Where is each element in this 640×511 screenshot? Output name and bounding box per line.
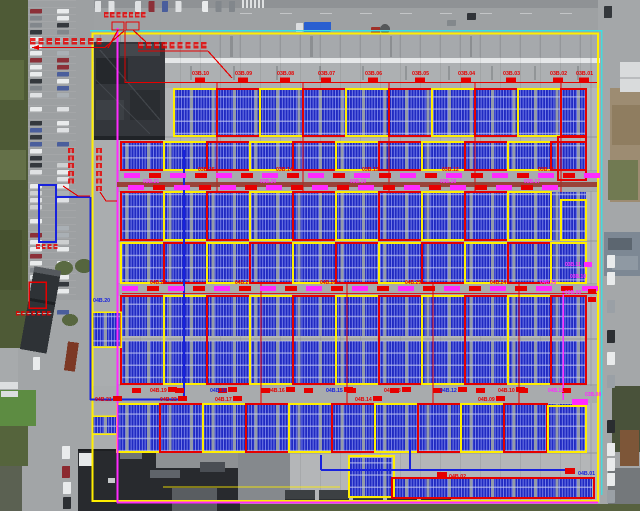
svg-text:03B.07: 03B.07 xyxy=(318,71,335,77)
svg-text:04B.16: 04B.16 xyxy=(268,388,285,394)
svg-text:03B.09: 03B.09 xyxy=(235,71,252,77)
svg-text:04B.27: 04B.27 xyxy=(235,280,251,286)
svg-text:03B.12: 03B.12 xyxy=(442,167,459,173)
svg-text:03B.05: 03B.05 xyxy=(412,71,429,77)
svg-text:04B.19: 04B.19 xyxy=(150,388,167,394)
svg-text:03B.09: 03B.09 xyxy=(565,290,581,296)
svg-text:03B.20: 03B.20 xyxy=(260,179,276,185)
svg-text:03B.17: 03B.17 xyxy=(524,179,540,185)
svg-text:04B.01: 04B.01 xyxy=(578,471,595,477)
svg-text:04B.14: 04B.14 xyxy=(355,397,372,403)
svg-text:04B.28: 04B.28 xyxy=(150,280,166,286)
svg-text:04B.02: 04B.02 xyxy=(449,474,466,480)
svg-text:03B.15: 03B.15 xyxy=(198,167,215,173)
svg-text:03B.11: 03B.11 xyxy=(538,167,555,173)
svg-text:03B.04: 03B.04 xyxy=(458,71,475,77)
svg-text:03B.03: 03B.03 xyxy=(503,71,520,77)
svg-text:04B.20: 04B.20 xyxy=(93,298,110,304)
svg-text:03B.02: 03B.02 xyxy=(550,71,567,77)
svg-text:03B.13: 03B.13 xyxy=(362,167,379,173)
svg-text:04B.13: 04B.13 xyxy=(384,388,401,394)
svg-text:04B.24: 04B.24 xyxy=(490,280,506,286)
svg-text:04B.26: 04B.26 xyxy=(320,280,336,286)
svg-text:03B.18: 03B.18 xyxy=(440,179,456,185)
svg-text:03B.11: 03B.11 xyxy=(565,262,581,268)
svg-text:04B.15: 04B.15 xyxy=(326,388,343,394)
svg-text:03B.10: 03B.10 xyxy=(192,71,209,77)
svg-text:04B.25: 04B.25 xyxy=(405,280,421,286)
svg-text:03B.21: 03B.21 xyxy=(143,179,159,185)
svg-text:03B.14: 03B.14 xyxy=(276,167,293,173)
svg-text:04B.21: 04B.21 xyxy=(95,397,112,403)
svg-text:04B.09: 04B.09 xyxy=(478,397,495,403)
svg-text:04B.23: 04B.23 xyxy=(540,280,556,286)
svg-text:03B.08: 03B.08 xyxy=(277,71,294,77)
svg-text:04B.10: 04B.10 xyxy=(498,388,515,394)
svg-text:03B.19: 03B.19 xyxy=(350,179,366,185)
svg-text:04B.17: 04B.17 xyxy=(215,397,232,403)
svg-text:03B.01: 03B.01 xyxy=(576,71,593,77)
svg-text:03B.06: 03B.06 xyxy=(365,71,382,77)
svg-text:04B.18: 04B.18 xyxy=(210,388,227,394)
svg-text:04B.12: 04B.12 xyxy=(440,388,457,394)
svg-text:03B.08: 03B.08 xyxy=(585,392,601,398)
svg-text:03B.10: 03B.10 xyxy=(570,274,586,280)
svg-text:04B.11: 04B.11 xyxy=(548,388,564,394)
svg-text:04B.22: 04B.22 xyxy=(160,397,177,403)
